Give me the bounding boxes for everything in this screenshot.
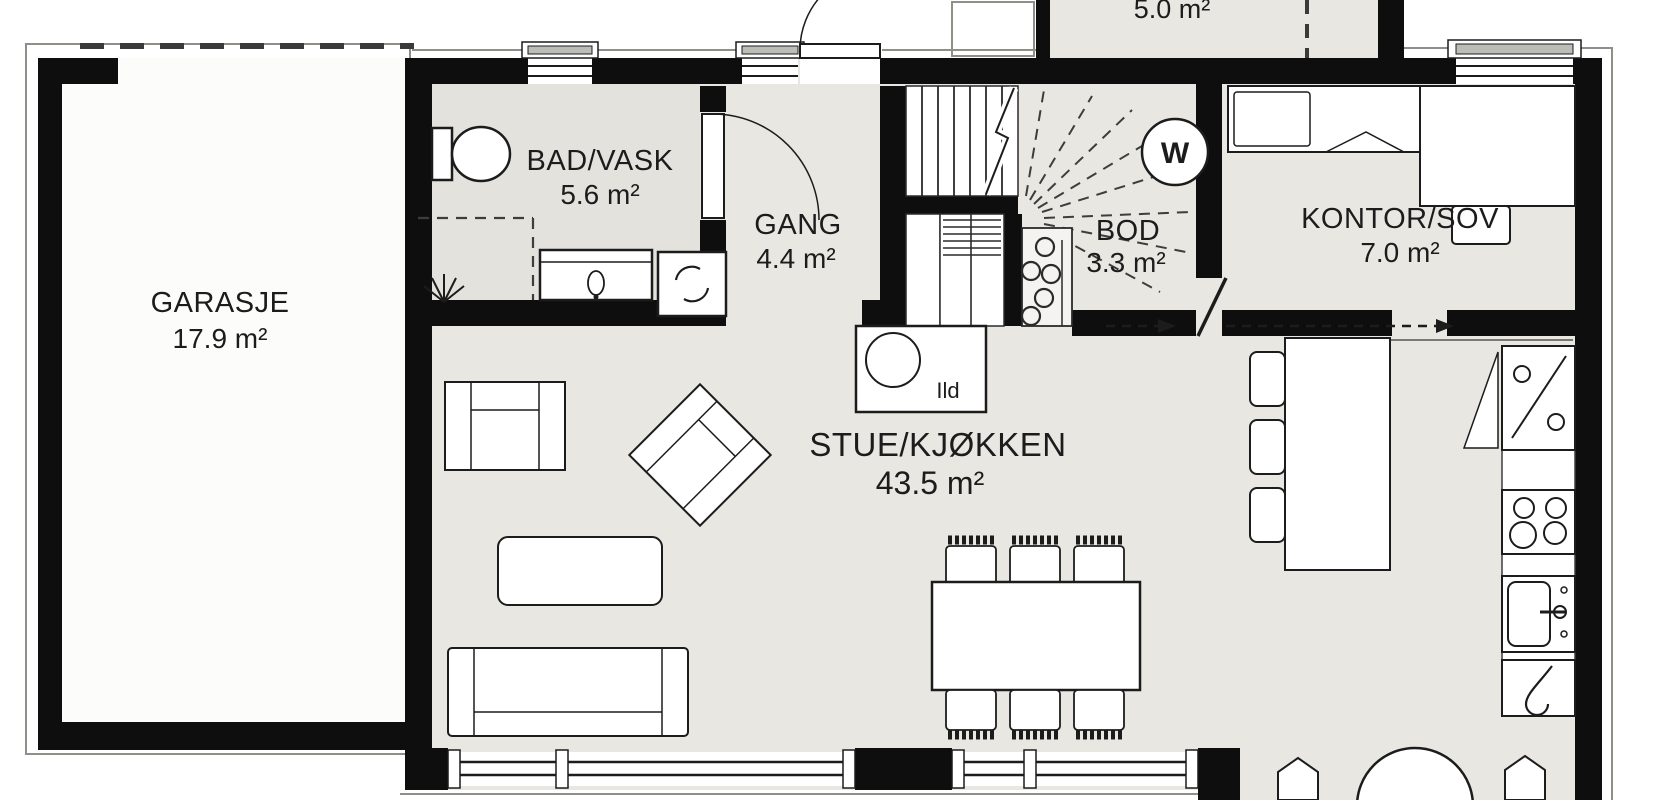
dining-table — [932, 582, 1140, 690]
window — [1448, 40, 1581, 84]
bar-stool — [1250, 488, 1285, 542]
coffee-table — [498, 537, 662, 605]
kitchen-sink-icon — [1502, 576, 1575, 652]
room-area-bad-vask: 5.6 m² — [560, 179, 639, 210]
pillow — [1234, 92, 1310, 146]
room-label-bod: BOD — [1096, 215, 1160, 247]
room-area-entre: 5.0 m² — [1134, 0, 1211, 24]
floor-plan-drawing: W — [0, 0, 1670, 800]
dining-chair — [1074, 690, 1124, 735]
dining-set — [932, 540, 1140, 735]
bar-stool — [1250, 352, 1285, 406]
top-wall — [405, 58, 528, 84]
wardrobe — [940, 214, 1004, 326]
closet-units — [906, 214, 1072, 326]
room-area-stue-kjokken: 43.5 m² — [876, 465, 985, 501]
vanity-sink — [540, 250, 652, 300]
porch-wall — [1378, 0, 1404, 60]
bathroom-wall — [700, 86, 726, 112]
garage-floor — [62, 58, 405, 724]
room-area-gang: 4.4 m² — [756, 243, 835, 274]
window-strip — [448, 750, 855, 788]
fireplace: Ild — [856, 326, 986, 412]
entry-porch-floor — [1050, 0, 1378, 58]
garage-left-wall — [38, 58, 62, 750]
dining-chair — [1010, 540, 1060, 586]
dining-chair — [946, 690, 996, 735]
window — [522, 42, 598, 84]
entrance-door — [800, 0, 880, 84]
desk — [1420, 86, 1575, 206]
top-wall — [592, 58, 742, 84]
room-area-kontor-sov: 7.0 m² — [1360, 237, 1439, 268]
room-label-garasje: GARASJE — [151, 287, 290, 319]
cooktop-icon — [1502, 490, 1575, 554]
bottom-wall — [855, 748, 952, 790]
top-wall — [880, 58, 1050, 84]
under-stair-wall — [906, 196, 1018, 214]
room-label-bad-vask: BAD/VASK — [527, 145, 674, 177]
house-right-wall — [1575, 58, 1602, 800]
water-heater-symbol: W — [1142, 119, 1208, 185]
room-label-stue-kjokken: STUE/KJØKKEN — [809, 426, 1066, 463]
toilet-icon — [432, 127, 510, 181]
room-area-bod: 3.3 m² — [1086, 247, 1165, 278]
water-heater-label: W — [1161, 137, 1190, 170]
bottom-wall-corner — [1198, 748, 1240, 800]
fireplace-label: Ild — [936, 378, 959, 403]
window-strip — [952, 750, 1198, 788]
kontor-bottom-wall — [1447, 310, 1602, 336]
window — [736, 42, 804, 84]
closet — [906, 214, 940, 326]
entry-stoop — [952, 2, 1034, 56]
bod-bottom-wall — [1072, 310, 1196, 336]
dishwasher-icon — [1502, 660, 1575, 716]
stair-wall — [880, 86, 906, 330]
closet-divider-wall — [1004, 214, 1022, 326]
garage-bottom-wall — [38, 722, 432, 750]
dining-chair — [1010, 690, 1060, 735]
tech-cabinet — [1022, 228, 1072, 326]
garage-top-stub — [38, 58, 118, 84]
room-label-gang: GANG — [754, 209, 841, 241]
washing-machine-icon — [658, 252, 726, 316]
bottom-windows — [448, 750, 1198, 788]
bottom-wall — [405, 748, 448, 790]
kontor-bottom-wall — [1222, 310, 1392, 336]
armchair — [445, 382, 565, 470]
porch-wall — [1036, 0, 1050, 60]
kitchen-island — [1285, 338, 1390, 570]
floor-plan: W — [0, 0, 1670, 800]
room-area-garasje: 17.9 m² — [173, 323, 268, 354]
dining-chair — [946, 540, 996, 586]
top-wall — [1050, 58, 1456, 84]
room-label-kontor-sov: KONTOR/SOV — [1301, 203, 1499, 235]
bed — [1228, 86, 1420, 152]
bar-stool — [1250, 420, 1285, 474]
house-left-wall — [405, 58, 432, 790]
dining-chair — [1074, 540, 1124, 586]
sofa — [448, 648, 688, 736]
